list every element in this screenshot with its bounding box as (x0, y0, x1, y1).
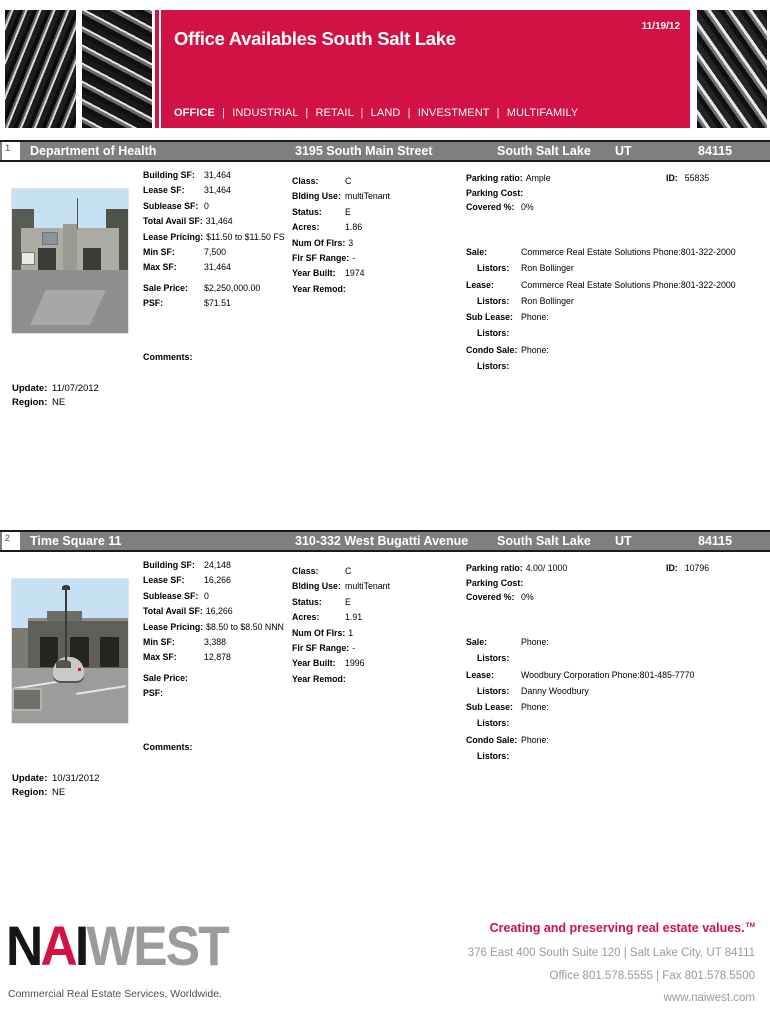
parking-fields: Parking ratio:4.00/ 1000 Parking Cost: C… (466, 561, 567, 605)
comments-label: Comments: (143, 742, 193, 752)
field-label: Year Built: (292, 266, 345, 281)
field-label: Listors: (466, 715, 521, 731)
nav-office: OFFICE (174, 107, 215, 119)
footer-contact-block: Creating and preserving real estate valu… (468, 921, 755, 1010)
photo-detail (56, 660, 71, 669)
field-value: 4.00/ 1000 (526, 561, 568, 576)
field-value: Ron Bollinger (521, 293, 574, 309)
photo-detail (65, 589, 67, 661)
field-value: - (352, 251, 355, 266)
field-value: 0 (204, 589, 209, 604)
field-row: Update:10/31/2012 (12, 772, 100, 786)
field-label: Parking ratio: (466, 171, 526, 186)
property-photo (12, 189, 128, 333)
field-label: Class: (292, 174, 345, 189)
logo-west: WEST (86, 914, 227, 977)
field-label: Acres: (292, 610, 345, 625)
field-row: Condo Sale:Phone: (466, 342, 736, 358)
field-row: Num Of Flrs:1 (292, 626, 390, 641)
field-row: Lease SF:31,464 (143, 183, 285, 198)
field-label: Flr SF Range: (292, 251, 352, 266)
field-row: Parking ratio:4.00/ 1000 (466, 561, 567, 576)
field-row: Sale Price: (143, 671, 204, 686)
field-label: Parking ratio: (466, 561, 526, 576)
building-attribute-fields: Class:C Blding Use:multiTenant Status:E … (292, 564, 390, 687)
field-label: ID: (666, 563, 681, 573)
field-value: Commerce Real Estate Solutions Phone:801… (521, 244, 736, 260)
field-value: 10/31/2012 (52, 772, 100, 786)
field-label: Year Remod: (292, 282, 349, 297)
trademark-symbol: TM (746, 922, 755, 929)
listing-name: Time Square 11 (30, 534, 122, 548)
comments-label: Comments: (143, 352, 193, 362)
logo-subtitle: Commercial Real Estate Services, Worldwi… (8, 988, 222, 1000)
field-row: Num Of Flrs:3 (292, 236, 390, 251)
listing-id: ID: 10796 (666, 563, 709, 573)
field-value: 16,266 (206, 604, 233, 619)
field-row: Year Built:1996 (292, 656, 390, 671)
field-label: Listors: (466, 650, 521, 666)
field-value: E (345, 205, 351, 220)
listing-city: South Salt Lake (497, 534, 591, 548)
field-label: Acres: (292, 220, 345, 235)
field-row: Sublease SF:0 (143, 589, 284, 604)
field-row: Parking ratio:Ample (466, 171, 551, 186)
field-label: Lease Pricing: (143, 620, 206, 635)
office-address: 376 East 400 South Suite 120 | Salt Lake… (468, 942, 755, 965)
field-row: Covered %:0% (466, 590, 567, 605)
field-label: Max SF: (143, 260, 204, 275)
parking-fields: Parking ratio:Ample Parking Cost: Covere… (466, 171, 551, 215)
field-value: 0 (204, 199, 209, 214)
field-row: Year Built:1974 (292, 266, 390, 281)
field-row: Status:E (292, 205, 390, 220)
field-row: Blding Use:multiTenant (292, 579, 390, 594)
building-attribute-fields: Class:C Blding Use:multiTenant Status:E … (292, 174, 390, 297)
field-label: Year Built: (292, 656, 345, 671)
field-row: Sale Price:$2,250,000.00 (143, 281, 260, 296)
sale-price-fields: Sale Price:$2,250,000.00 PSF:$71.51 (143, 281, 260, 312)
field-value: C (345, 174, 351, 189)
field-row: Total Avail SF:16,266 (143, 604, 284, 619)
field-label: Flr SF Range: (292, 641, 352, 656)
field-label: Min SF: (143, 245, 204, 260)
logo-letter-n: N (6, 914, 40, 977)
property-photo (12, 579, 128, 723)
field-label: Status: (292, 205, 345, 220)
field-row: Listors: (466, 650, 694, 666)
field-row: Listors: (466, 358, 736, 374)
listing-name: Department of Health (30, 144, 156, 158)
header-banner: Office Availables South Salt Lake 11/19/… (161, 10, 690, 128)
field-row: Year Remod: (292, 672, 390, 687)
field-value: Phone: (521, 309, 549, 325)
listing-street-address: 3195 South Main Street (295, 144, 433, 158)
field-label: Lease Pricing: (143, 230, 206, 245)
field-row: Region:NE (12, 786, 100, 800)
field-row: Max SF:12,878 (143, 650, 284, 665)
photo-detail (12, 688, 42, 711)
nav-separator: | (305, 107, 308, 119)
field-row: Parking Cost: (466, 576, 567, 591)
field-value: Phone: (521, 634, 549, 650)
header-architecture-photo-left-2 (82, 10, 152, 128)
nav-separator: | (222, 107, 225, 119)
field-row: Listors: (466, 748, 694, 764)
field-value: $71.51 (204, 296, 231, 311)
listing-1: 1 Department of Health 3195 South Main S… (0, 140, 770, 425)
field-row: Acres:1.91 (292, 610, 390, 625)
listing-state: UT (615, 534, 632, 548)
field-label: Building SF: (143, 168, 204, 183)
field-value: 31,464 (204, 183, 231, 198)
field-row: Building SF:31,464 (143, 168, 285, 183)
header-architecture-photo-right (697, 10, 767, 128)
field-label: Lease: (466, 667, 521, 683)
photo-detail (100, 637, 119, 667)
logo-letter-i: I (75, 914, 87, 977)
photo-detail (38, 248, 57, 270)
field-row: Lease SF:16,266 (143, 573, 284, 588)
header-architecture-photo-left-1 (5, 10, 76, 128)
field-row: Condo Sale:Phone: (466, 732, 694, 748)
field-label: Condo Sale: (466, 342, 521, 358)
field-value: 1 (348, 626, 353, 641)
field-value: Ample (526, 171, 551, 186)
field-label: Lease SF: (143, 573, 204, 588)
field-label: Year Remod: (292, 672, 349, 687)
field-label: Listors: (466, 358, 521, 374)
field-label: Sublease SF: (143, 199, 204, 214)
contact-fields: Sale:Phone: Listors: Lease:Woodbury Corp… (466, 634, 694, 764)
field-label: Blding Use: (292, 189, 345, 204)
field-label: Listors: (466, 260, 521, 276)
field-value: 1974 (345, 266, 365, 281)
field-row: Max SF:31,464 (143, 260, 285, 275)
field-value: 31,464 (204, 260, 231, 275)
photo-detail (47, 611, 82, 621)
field-value: NE (52, 396, 65, 410)
field-label: Status: (292, 595, 345, 610)
field-label: Region: (12, 396, 52, 410)
field-value: 0% (521, 200, 534, 215)
size-pricing-fields: Building SF:24,148 Lease SF:16,266 Suble… (143, 558, 284, 666)
field-row: Flr SF Range:- (292, 641, 390, 656)
field-value: $11.50 to $11.50 FS (206, 230, 284, 245)
logo-letter-a: A (40, 914, 74, 977)
field-row: Listors: (466, 325, 736, 341)
field-value: Commerce Real Estate Solutions Phone:801… (521, 277, 736, 293)
nav-investment: INVESTMENT (418, 107, 490, 119)
listing-header-bar: 2 Time Square 11 310-332 West Bugatti Av… (0, 530, 770, 552)
field-value: 11/07/2012 (52, 382, 99, 396)
field-value: - (352, 641, 355, 656)
listing-id: ID: 55835 (666, 173, 709, 183)
field-value: 3,388 (204, 635, 226, 650)
nav-multifamily: MULTIFAMILY (507, 107, 579, 119)
header-red-divider (155, 10, 159, 128)
listing-street-address: 310-332 West Bugatti Avenue (295, 534, 468, 548)
listing-city: South Salt Lake (497, 144, 591, 158)
field-row: Lease Pricing:$8.50 to $8.50 NNN (143, 620, 284, 635)
contact-fields: Sale:Commerce Real Estate Solutions Phon… (466, 244, 736, 374)
field-label: Sale Price: (143, 281, 204, 296)
tagline-text: Creating and preserving real estate valu… (490, 921, 745, 935)
report-page: Office Availables South Salt Lake 11/19/… (0, 0, 770, 1024)
field-label: Total Avail SF: (143, 604, 206, 619)
field-label: Total Avail SF: (143, 214, 206, 229)
listing-header-bar: 1 Department of Health 3195 South Main S… (0, 140, 770, 162)
field-value: 24,148 (204, 558, 231, 573)
field-label: PSF: (143, 686, 204, 701)
field-label: Sale: (466, 244, 521, 260)
field-value: 1.86 (345, 220, 362, 235)
category-nav: OFFICE | INDUSTRIAL | RETAIL | LAND | IN… (174, 107, 578, 119)
report-date: 11/19/12 (642, 21, 680, 32)
field-label: Region: (12, 786, 52, 800)
photo-detail (78, 668, 81, 671)
size-pricing-fields: Building SF:31,464 Lease SF:31,464 Suble… (143, 168, 285, 276)
listing-2: 2 Time Square 11 310-332 West Bugatti Av… (0, 530, 770, 815)
field-label: Sale Price: (143, 671, 204, 686)
field-row: PSF:$71.51 (143, 296, 260, 311)
field-label: Sub Lease: (466, 699, 521, 715)
page-title: Office Availables South Salt Lake (174, 28, 456, 50)
field-value: 31,464 (206, 214, 233, 229)
field-label: Update: (12, 772, 52, 786)
photo-detail (42, 232, 58, 245)
photo-detail (77, 198, 78, 230)
field-row: Update:11/07/2012 (12, 382, 99, 396)
field-label: Building SF: (143, 558, 204, 573)
field-label: Sublease SF: (143, 589, 204, 604)
field-value: 1.91 (345, 610, 362, 625)
field-row: Listors:Ron Bollinger (466, 260, 736, 276)
field-value: $2,250,000.00 (204, 281, 260, 296)
field-row: Sub Lease:Phone: (466, 309, 736, 325)
field-row: Lease:Woodbury Corporation Phone:801-485… (466, 667, 694, 683)
field-value: Woodbury Corporation Phone:801-485-7770 (521, 667, 694, 683)
field-label: Min SF: (143, 635, 204, 650)
photo-detail (83, 248, 102, 270)
field-row: Year Remod: (292, 282, 390, 297)
field-row: Sub Lease:Phone: (466, 699, 694, 715)
field-label: Covered %: (466, 590, 521, 605)
field-value: 55835 (685, 173, 709, 183)
photo-detail (63, 224, 77, 270)
field-row: Sale:Phone: (466, 634, 694, 650)
field-row: Covered %:0% (466, 200, 551, 215)
field-value: NE (52, 786, 65, 800)
field-row: Total Avail SF:31,464 (143, 214, 285, 229)
field-row: Class:C (292, 174, 390, 189)
field-row: PSF: (143, 686, 204, 701)
field-row: Min SF:7,500 (143, 245, 285, 260)
nav-separator: | (361, 107, 364, 119)
field-row: Building SF:24,148 (143, 558, 284, 573)
field-label: Lease: (466, 277, 521, 293)
photo-detail (62, 585, 70, 590)
field-label: Lease SF: (143, 183, 204, 198)
field-label: Listors: (466, 748, 521, 764)
sale-price-fields: Sale Price: PSF: (143, 671, 204, 702)
field-label: Listors: (466, 293, 521, 309)
field-row: Parking Cost: (466, 186, 551, 201)
field-value: 1996 (345, 656, 365, 671)
field-value: Danny Woodbury (521, 683, 589, 699)
field-value: Phone: (521, 699, 549, 715)
field-label: Covered %: (466, 200, 521, 215)
nav-separator: | (497, 107, 500, 119)
field-label: Listors: (466, 325, 521, 341)
listing-zip: 84115 (698, 534, 732, 548)
field-label: Update: (12, 382, 52, 396)
field-value: Phone: (521, 732, 549, 748)
nav-industrial: INDUSTRIAL (232, 107, 298, 119)
listing-number: 1 (2, 142, 20, 160)
field-label: Num Of Flrs: (292, 626, 348, 641)
photo-detail (21, 252, 35, 265)
field-row: Region:NE (12, 396, 99, 410)
field-label: ID: (666, 173, 681, 183)
listing-zip: 84115 (698, 144, 732, 158)
field-row: Listors:Danny Woodbury (466, 683, 694, 699)
field-row: Lease:Commerce Real Estate Solutions Pho… (466, 277, 736, 293)
listing-state: UT (615, 144, 632, 158)
field-value: 31,464 (204, 168, 231, 183)
field-label: Sub Lease: (466, 309, 521, 325)
field-row: Sale:Commerce Real Estate Solutions Phon… (466, 244, 736, 260)
nav-separator: | (408, 107, 411, 119)
field-row: Sublease SF:0 (143, 199, 285, 214)
field-row: Acres:1.86 (292, 220, 390, 235)
field-label: Parking Cost: (466, 576, 526, 591)
field-row: Class:C (292, 564, 390, 579)
field-label: Listors: (466, 683, 521, 699)
field-value: multiTenant (345, 189, 390, 204)
naiwest-logo: NAIWEST (6, 918, 228, 974)
field-row: Listors: (466, 715, 694, 731)
field-value: C (345, 564, 351, 579)
field-row: Flr SF Range:- (292, 251, 390, 266)
field-value: 10796 (685, 563, 709, 573)
field-label: Num Of Flrs: (292, 236, 348, 251)
listing-number: 2 (2, 532, 20, 550)
listing-meta: Update:11/07/2012 Region:NE (12, 382, 99, 409)
field-label: Class: (292, 564, 345, 579)
website-url: www.naiwest.com (468, 987, 755, 1010)
field-value: 16,266 (204, 573, 231, 588)
field-label: Max SF: (143, 650, 204, 665)
field-value: 12,878 (204, 650, 231, 665)
company-tagline: Creating and preserving real estate valu… (468, 921, 755, 935)
office-phone-fax: Office 801.578.5555 | Fax 801.578.5500 (468, 965, 755, 988)
field-row: Lease Pricing:$11.50 to $11.50 FS (143, 230, 285, 245)
field-label: Parking Cost: (466, 186, 526, 201)
field-value: 3 (348, 236, 353, 251)
field-value: 0% (521, 590, 534, 605)
field-value: multiTenant (345, 579, 390, 594)
field-value: Ron Bollinger (521, 260, 574, 276)
listing-meta: Update:10/31/2012 Region:NE (12, 772, 100, 799)
nav-retail: RETAIL (316, 107, 354, 119)
field-row: Status:E (292, 595, 390, 610)
field-value: $8.50 to $8.50 NNN (206, 620, 284, 635)
field-row: Min SF:3,388 (143, 635, 284, 650)
field-label: Blding Use: (292, 579, 345, 594)
nav-land: LAND (371, 107, 401, 119)
field-label: Condo Sale: (466, 732, 521, 748)
field-row: Blding Use:multiTenant (292, 189, 390, 204)
field-label: PSF: (143, 296, 204, 311)
field-value: Phone: (521, 342, 549, 358)
field-value: 7,500 (204, 245, 226, 260)
field-value: E (345, 595, 351, 610)
field-label: Sale: (466, 634, 521, 650)
field-row: Listors:Ron Bollinger (466, 293, 736, 309)
